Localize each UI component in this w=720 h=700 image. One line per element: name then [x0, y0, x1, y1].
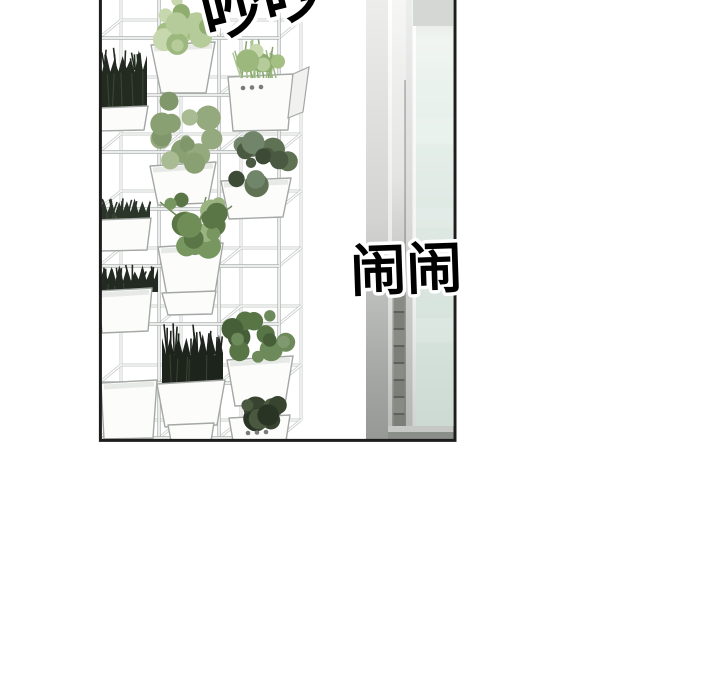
- glass-reflection: [416, 208, 453, 228]
- door-sill-top: [388, 426, 455, 432]
- door-frame-edge: [406, 0, 413, 441]
- door-jamb: [366, 0, 388, 441]
- panel-illustration: 吵吵 闹闹: [0, 0, 720, 700]
- planter-flat-left-1: [96, 198, 151, 251]
- sfx-middle-text: 闹闹: [349, 236, 463, 305]
- planter-grass-bottom: [157, 323, 225, 441]
- comic-page: 吵吵 闹闹: [0, 0, 720, 700]
- planter-bush-bottom-right: [222, 310, 296, 406]
- planter-flat-left-2: [96, 265, 158, 333]
- door-jamb-highlight: [388, 0, 392, 441]
- sfx-top-text: 吵吵: [194, 0, 332, 53]
- door-frame-highlight: [413, 0, 417, 430]
- door-illustration: [366, 0, 455, 441]
- planter-wisps-top-right: [228, 39, 309, 131]
- door-glass-top-band: [413, 0, 453, 26]
- glass-reflection: [416, 318, 453, 342]
- planters: [96, 0, 309, 441]
- planter-leafy-center: [158, 193, 232, 315]
- glass-reflection: [416, 118, 453, 144]
- planter-grass-upper-left: [97, 48, 148, 131]
- planter-bush-mid: [150, 92, 222, 205]
- empty-box-bottom-left: [101, 380, 157, 439]
